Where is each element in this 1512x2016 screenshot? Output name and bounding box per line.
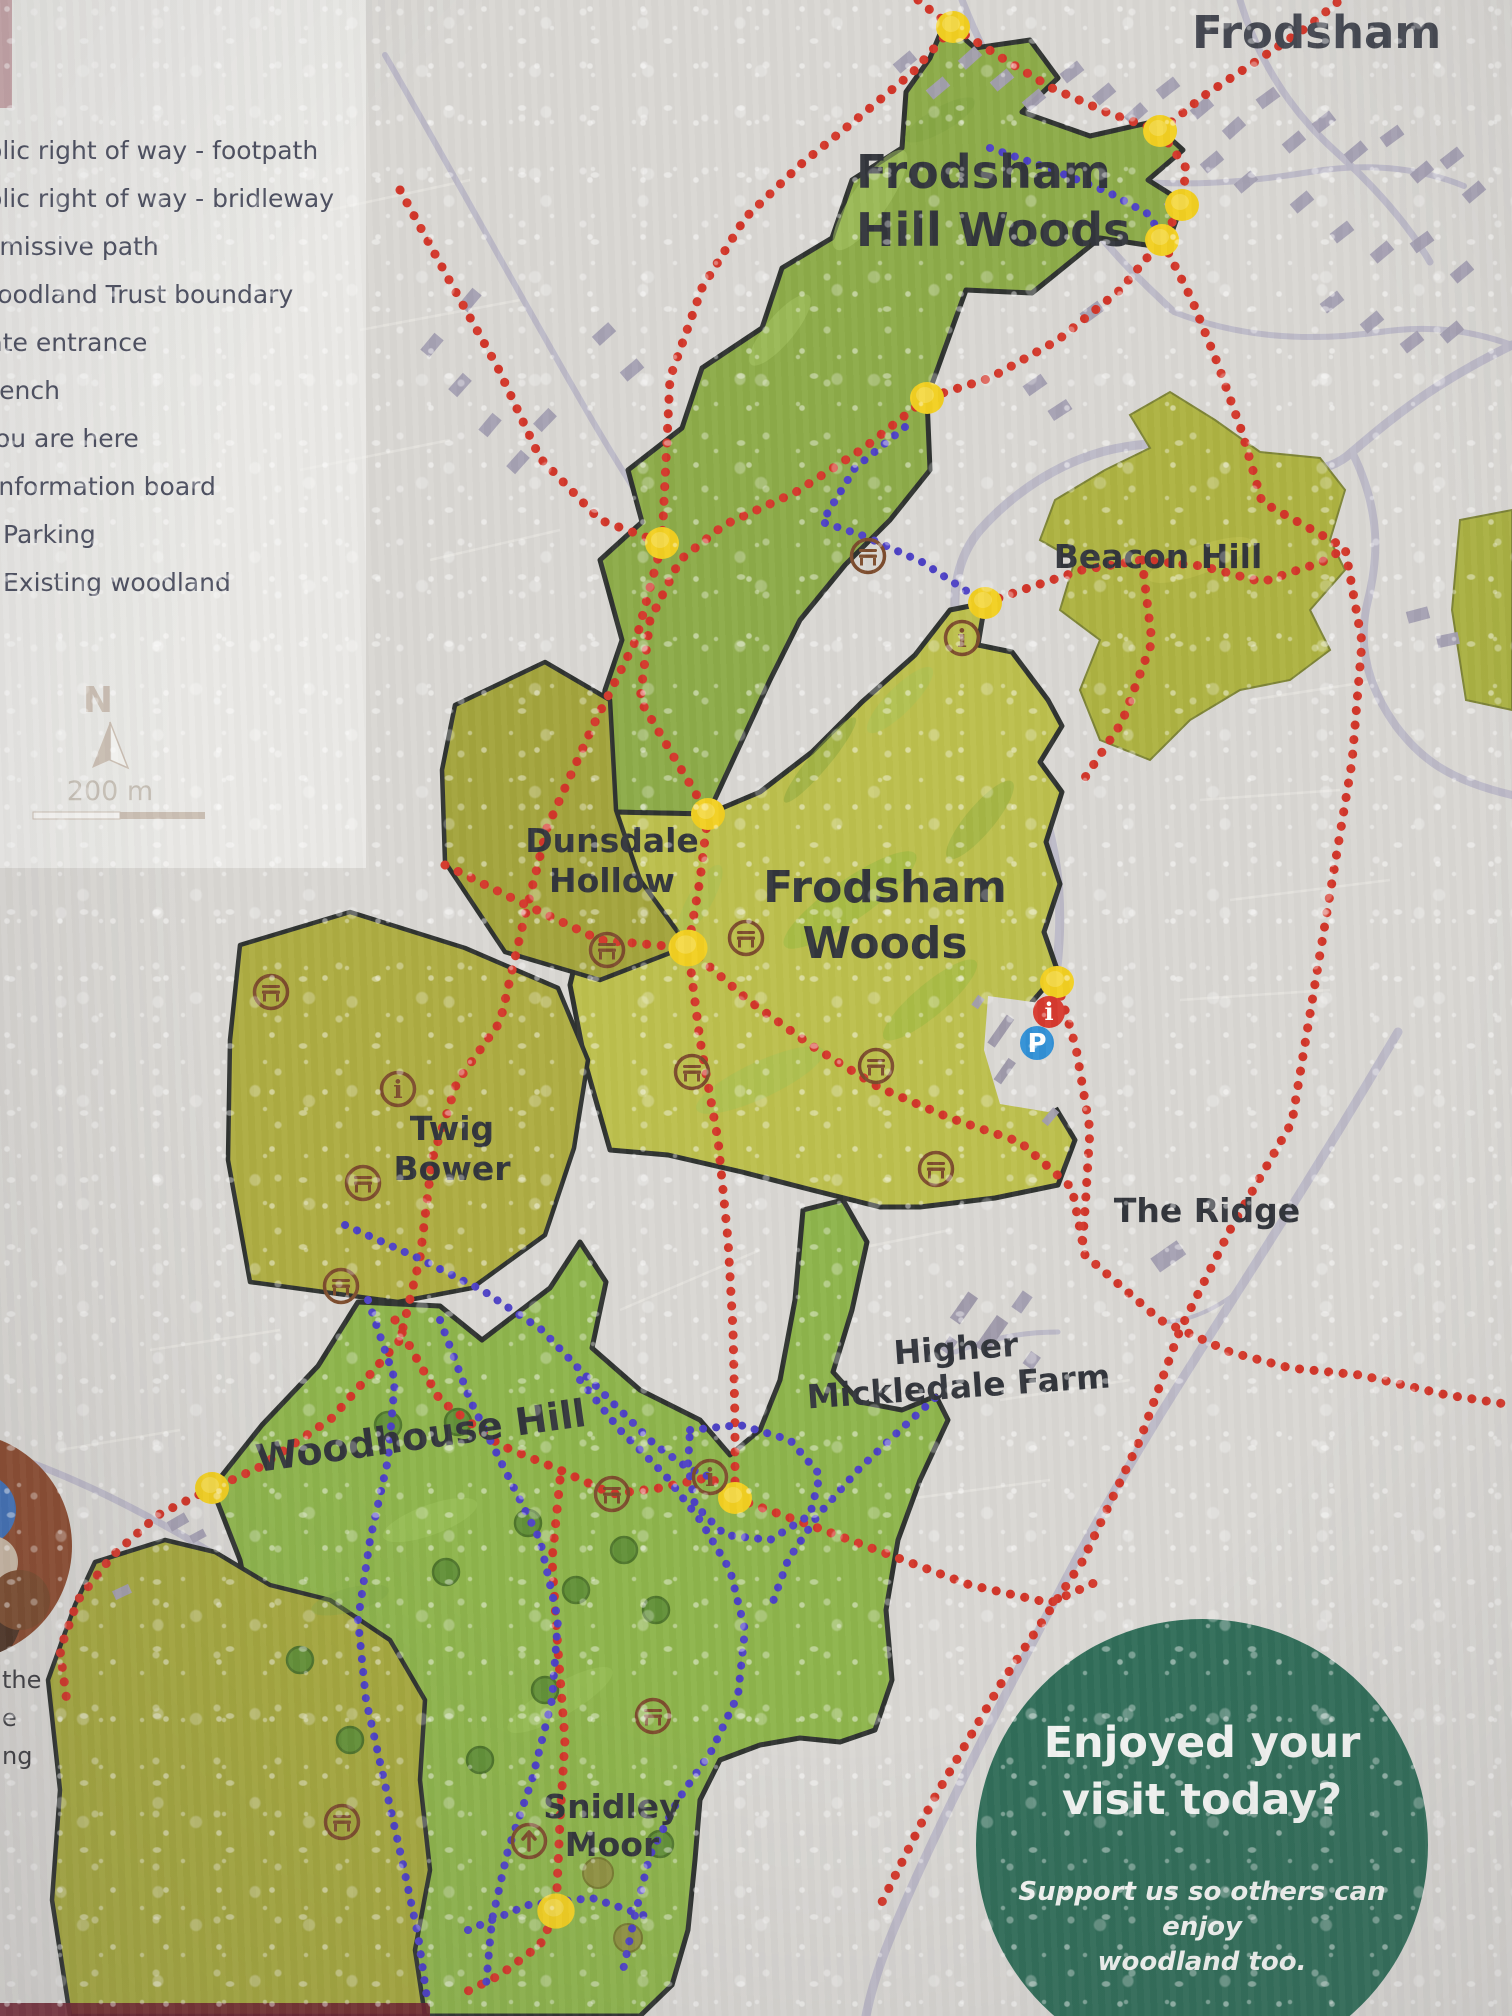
info-point-marker: i	[1033, 996, 1065, 1028]
label-dunsdale-2: Hollow	[549, 861, 675, 900]
legend-item-bench: Bench	[0, 378, 366, 403]
legend-item-existing-wood: Existing woodland	[3, 570, 366, 595]
legend-item-bridleway: Public right of way - bridleway	[0, 186, 366, 211]
photo-caption-fragment: the	[2, 1668, 41, 1692]
label-snidley-1: Snidley	[543, 1787, 680, 1826]
label-frodsham-woods-2: Woods	[802, 918, 967, 969]
legend-panel: Public right of way - footpath Public ri…	[0, 0, 366, 868]
legend-item-permissive-path: Permissive path	[0, 234, 366, 259]
label-frodsham-town: Frodsham	[1192, 6, 1441, 59]
promo-body-2: woodland too.	[976, 1945, 1428, 1980]
label-beacon-hill: Beacon Hill	[1054, 537, 1263, 576]
legend-item-gate-entrance: Gate entrance	[0, 330, 366, 355]
legend-item-footpath: Public right of way - footpath	[0, 138, 366, 163]
label-hill-woods-1: Frodsham	[856, 145, 1111, 199]
parking-icon: P	[1027, 1029, 1046, 1059]
label-hill-woods-2: Hill Woods	[856, 203, 1130, 257]
info-point-icon: i	[1044, 997, 1053, 1026]
label-frodsham-woods-1: Frodsham	[763, 862, 1007, 913]
promo-cta-phone: Call 0330 333 3300 or go to	[976, 2012, 1428, 2016]
label-dunsdale-1: Dunsdale	[525, 821, 699, 860]
photo-caption-fragment: ng	[2, 1744, 32, 1768]
info-board-icon: i	[393, 1075, 403, 1104]
map-information-board: i i i i P Frodsham Frodsham Hill Woods B…	[0, 0, 1512, 2016]
label-twig-bower-2: Bower	[394, 1149, 512, 1188]
legend-item-trust-boundary: Woodland Trust boundary	[0, 282, 366, 307]
board-edge-bottom	[0, 2003, 430, 2016]
info-board-icon: i	[705, 1463, 715, 1492]
promo-body-1: Support us so others can enjoy	[976, 1875, 1428, 1945]
promo-heading-1: Enjoyed your	[976, 1715, 1428, 1772]
parking-marker: P	[1020, 1026, 1054, 1060]
promo-heading-2: visit today?	[976, 1772, 1428, 1829]
legend-item-information: Information board	[0, 474, 366, 499]
legend-item-you-are-here: You are here	[0, 426, 366, 451]
label-snidley-2: Moor	[565, 1825, 660, 1864]
label-the-ridge: The Ridge	[1114, 1191, 1300, 1230]
label-twig-bower-1: Twig	[410, 1109, 494, 1148]
photo-caption-fragment: e	[2, 1706, 17, 1730]
legend-item-parking: Parking	[3, 522, 366, 547]
info-board-icon: i	[957, 624, 967, 653]
legend-list: Public right of way - footpath Public ri…	[0, 0, 366, 595]
